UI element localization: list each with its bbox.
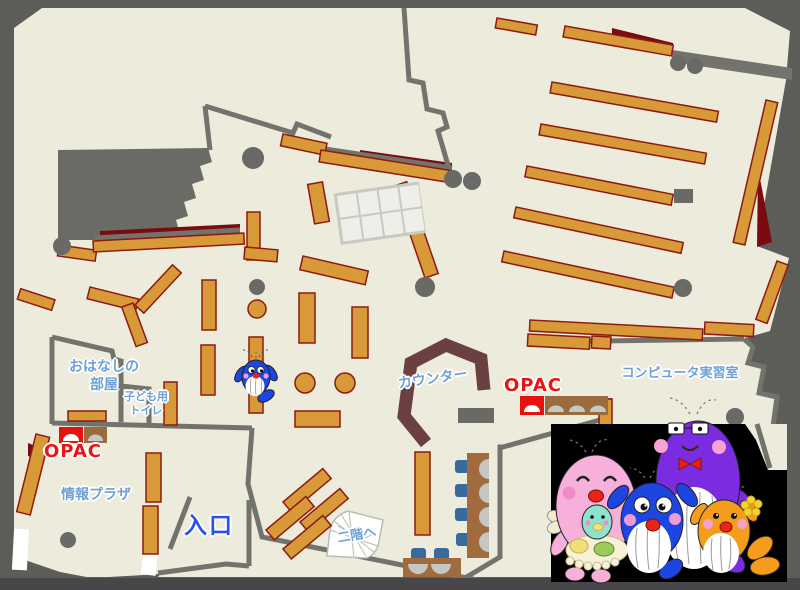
label-story-room-line1: おはなしの [52,359,156,377]
label-computer-room: コンピュータ実習室 [614,366,746,382]
label-opac-left: OPAC [42,441,104,464]
label-opac-right: OPAC [502,375,564,398]
library-floor-map: おはなしの 部屋 子ども用 トイレ OPAC 情報プラザ 入口 二階へ カウンタ… [0,0,800,590]
label-story-room: おはなしの 部屋 [52,359,156,394]
label-entrance: 入口 [180,512,238,541]
opac-terminal-right [520,396,608,415]
label-kids-toilet-line1: 子ども用 [112,390,180,404]
label-kids-toilet: 子ども用 トイレ [112,390,180,418]
label-info-plaza: 情報プラザ [50,487,142,505]
label-kids-toilet-line2: トイレ [112,404,180,418]
